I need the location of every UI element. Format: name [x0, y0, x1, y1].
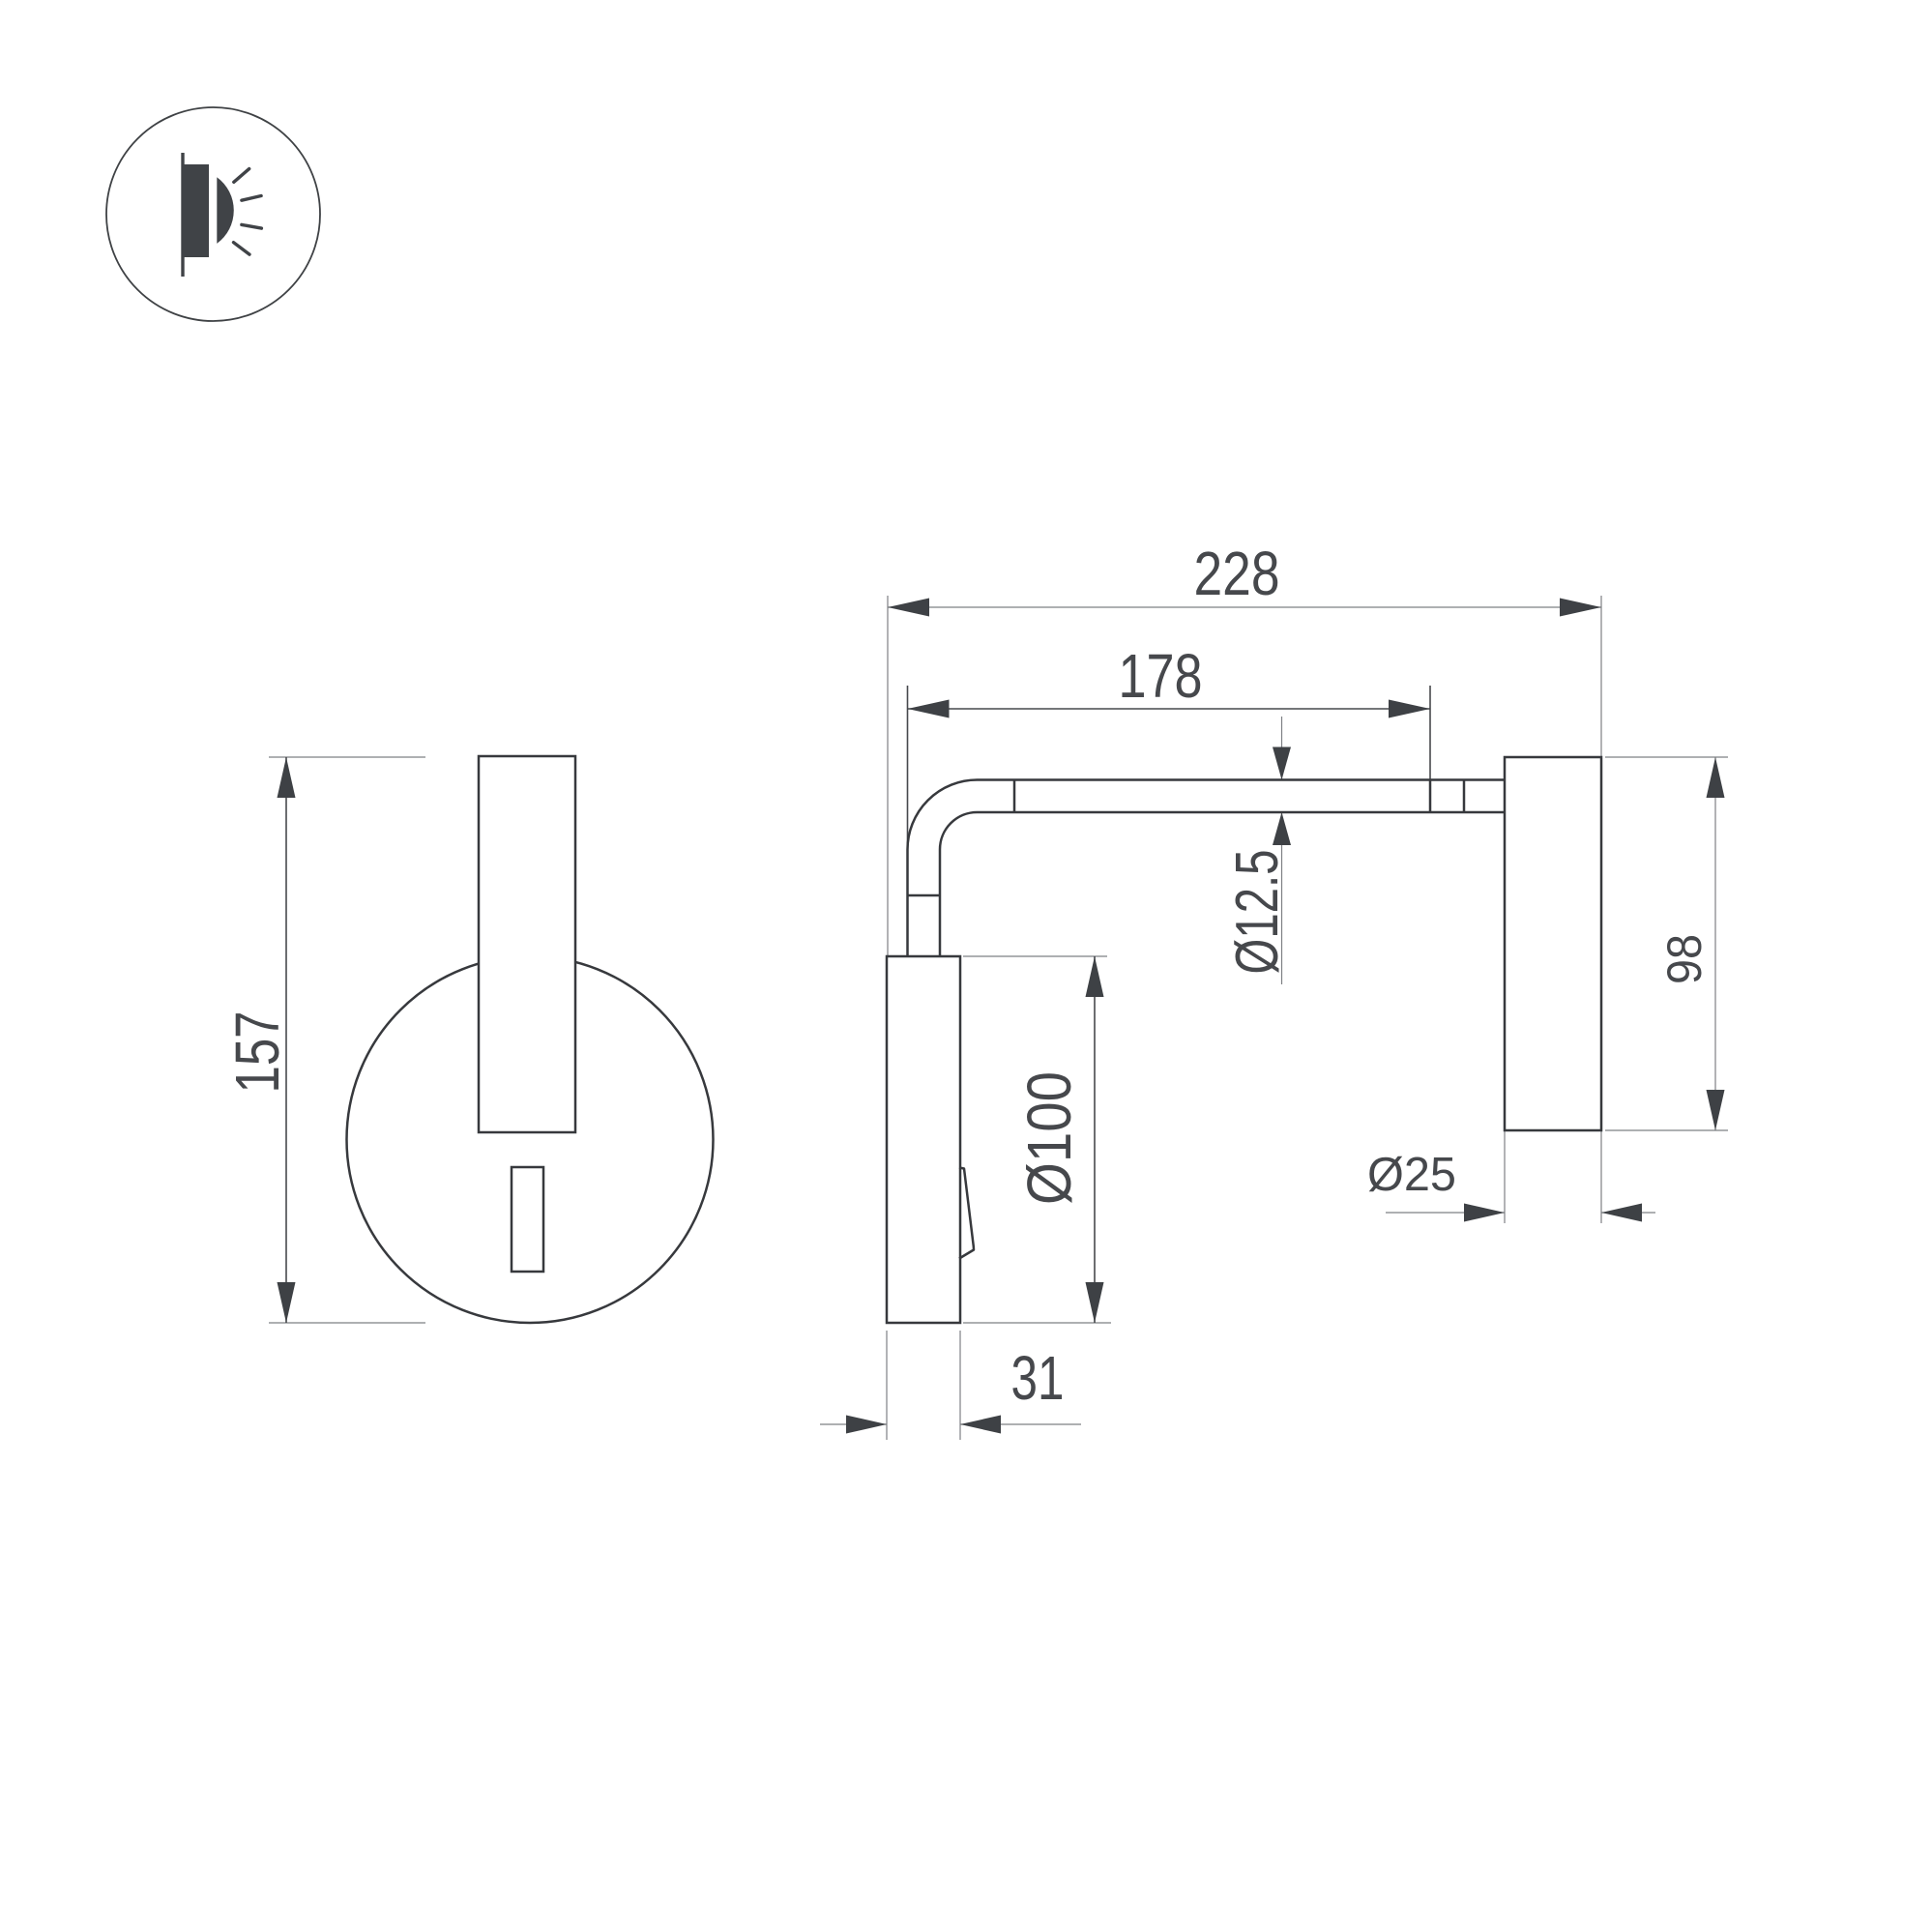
svg-text:Ø12.5: Ø12.5: [1224, 850, 1291, 975]
svg-text:31: 31: [1011, 1343, 1065, 1413]
svg-text:228: 228: [1194, 539, 1280, 608]
svg-text:Ø100: Ø100: [1014, 1071, 1084, 1205]
svg-text:98: 98: [1657, 934, 1712, 984]
svg-text:178: 178: [1119, 641, 1203, 711]
svg-text:157: 157: [222, 1011, 292, 1094]
svg-text:Ø25: Ø25: [1367, 1149, 1456, 1201]
